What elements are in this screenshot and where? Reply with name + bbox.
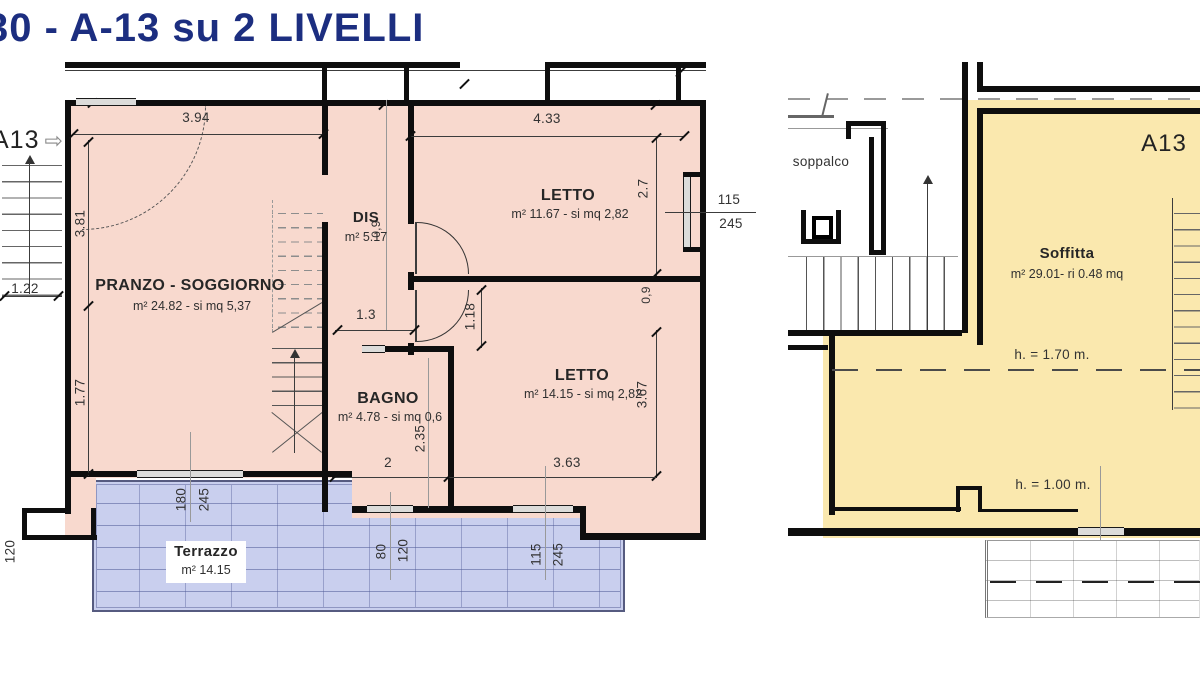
dim-line (656, 330, 657, 478)
wall-interior-left (977, 108, 983, 345)
room-area-soffitta: m² 29.01- ri 0.48 mq (967, 267, 1167, 281)
room-area-bagno: m² 4.78 - si mq 0,6 (290, 410, 490, 424)
room-label-bagno: BAGNO (288, 390, 488, 408)
dim-line (332, 477, 656, 478)
wall-interior (408, 100, 414, 224)
flue-outline (836, 210, 841, 244)
wall-interior (322, 222, 328, 512)
wall (65, 471, 137, 477)
height-note-170: h. = 1.70 m. (972, 347, 1132, 362)
wall (977, 62, 983, 88)
wall-line (788, 115, 834, 118)
wall (683, 247, 706, 252)
door-leaf (415, 290, 417, 342)
dim-left-upper: 3.81 (73, 204, 88, 244)
dim-window-bagno-w: 80 (374, 532, 389, 572)
room-area-dis: m² 5.17 (316, 230, 416, 244)
dim-window-terrace-w: 180 (174, 480, 189, 520)
dim-chain-line (65, 70, 706, 71)
lower-terrace-hatch (985, 540, 1200, 618)
dim-window-letto1-h: 245 (707, 216, 755, 231)
room-area-soggiorno: m² 24.82 - si mq 5,37 (92, 299, 292, 313)
dim-extension-line (428, 358, 429, 508)
wall (22, 535, 97, 540)
stairs-direction-line (927, 184, 928, 330)
dim-parapet: 120 (3, 536, 18, 568)
wall (545, 62, 706, 68)
dim-window-letto2-w: 115 (529, 535, 544, 575)
room-area-letto1: m² 11.67 - si mq 2,82 (470, 207, 670, 221)
dim-line (410, 136, 684, 137)
flue-inner (812, 216, 833, 239)
wall-interior (448, 352, 454, 512)
thin-line (788, 128, 888, 129)
floor-fill (585, 478, 706, 540)
dim-line-landing (2, 296, 62, 297)
wall-interior-top (977, 108, 1200, 114)
dim-window-bagno-h: 120 (396, 531, 411, 571)
wall (22, 508, 71, 513)
dim-line (73, 134, 323, 135)
dim-bagno-height: 2.35 (413, 419, 428, 459)
dim-door-niche: 1.18 (463, 297, 478, 337)
wall (545, 68, 550, 100)
unit-label-a13: A13 (1128, 130, 1200, 158)
chimney-outline (846, 121, 851, 139)
room-label-letto2: LETTO (482, 367, 682, 385)
dim-bagno-width: 2 (378, 455, 398, 470)
thin-line (788, 256, 958, 257)
door-threshold-bagno (362, 345, 385, 353)
dim-left-lower: 1.77 (73, 373, 88, 413)
dim-extension-line (545, 466, 546, 580)
dim-window-terrace-h: 245 (197, 480, 212, 520)
door-opening-entrance (76, 98, 136, 106)
chimney-outline (881, 121, 886, 255)
room-area-terrazzo: m² 14.15 (166, 563, 246, 577)
room-label-soggiorno: PRANZO - SOGGIORNO (90, 277, 290, 295)
wall (404, 68, 409, 100)
dim-window-letto2-h: 245 (551, 535, 566, 575)
stairwell-treads (790, 256, 958, 332)
wall-exterior-right (700, 100, 706, 540)
terrace-dashed-line (990, 581, 1200, 583)
wall-exterior-bottom (788, 528, 1078, 536)
dim-line (656, 136, 657, 276)
wall (322, 68, 327, 100)
wall-interior (322, 100, 328, 175)
wall-inner-bottom (982, 509, 1078, 512)
chimney-outline (846, 121, 886, 126)
wall (352, 506, 367, 513)
wall-exterior-left (962, 62, 968, 333)
roof-ridge-dashed-line (788, 98, 1200, 100)
dim-extension-line (390, 492, 391, 580)
window-letto2 (513, 505, 573, 513)
wall-interior (385, 346, 454, 352)
height-line-dashed (832, 369, 1200, 371)
dim-line (335, 330, 416, 331)
dim-letto1-width: 4.33 (517, 111, 577, 126)
stairs-edge (1172, 198, 1173, 410)
room-label-soffitta: Soffitta (987, 245, 1147, 262)
stairwell-treads (2, 150, 62, 298)
height-note-100: h. = 1.00 m. (973, 477, 1133, 492)
dim-door2-width: 0,9 (639, 280, 653, 310)
room-area-letto2: m² 14.15 - si mq 2,82 (483, 387, 683, 401)
room-label-terrazzo: Terrazzo (166, 543, 246, 560)
wall (91, 508, 96, 540)
dim-dis-width: 1.3 (346, 307, 386, 322)
chimney-outline (869, 137, 874, 255)
label-soppalco: soppalco (788, 154, 854, 169)
dim-line-window (665, 212, 756, 213)
dim-line (88, 140, 89, 476)
wall (788, 345, 828, 350)
wall-exterior-bottom (585, 533, 706, 540)
wall-exterior-bottom (1124, 528, 1200, 536)
stairs-direction-line (29, 163, 30, 294)
wall-exterior-top (977, 86, 1200, 92)
chimney-outline (869, 250, 886, 255)
wall (65, 62, 460, 68)
wall-interior (414, 276, 706, 282)
dim-tick (459, 79, 470, 90)
flue-outline (801, 239, 841, 244)
stairs-up-arrow-icon (923, 175, 933, 184)
dim-landing-width: 1.22 (5, 281, 45, 296)
dim-letto2-width: 3.63 (537, 455, 597, 470)
wall-exterior-left (65, 100, 71, 478)
dim-window-letto1-w: 115 (705, 192, 753, 207)
room-label-dis: DIS (316, 209, 416, 226)
stairs-treads (1174, 198, 1200, 410)
plan-level1: 1.22 (0, 0, 760, 680)
wall-lower-left (829, 335, 835, 515)
pillar (956, 486, 960, 512)
dim-soggiorno-width: 3.94 (166, 110, 226, 125)
wall (788, 330, 962, 336)
room-label-letto1: LETTO (468, 187, 668, 205)
dim-line (481, 288, 482, 348)
wall-inner-bottom (829, 507, 961, 511)
dim-extension-line (190, 432, 191, 522)
